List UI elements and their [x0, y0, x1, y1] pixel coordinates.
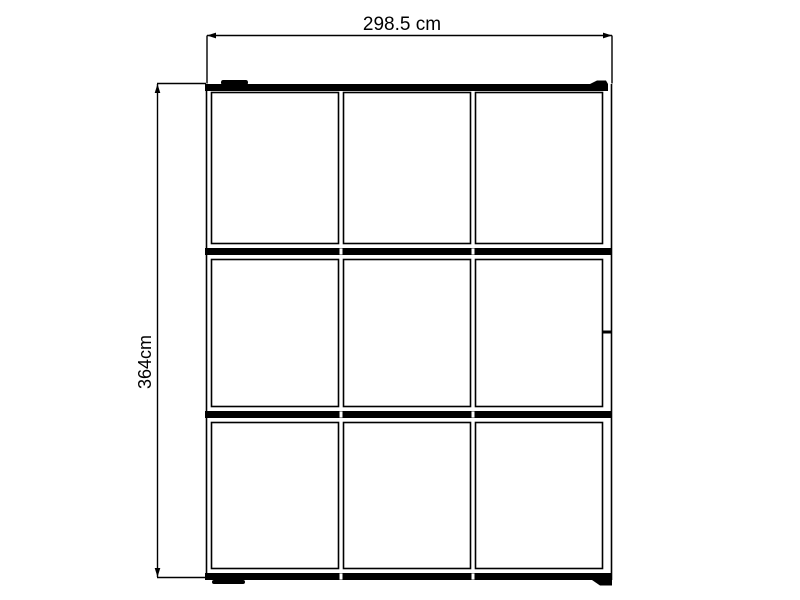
height-arrow-top-icon	[155, 84, 161, 93]
divider-1-notch-right	[472, 248, 475, 254]
bottom-rail-notch-left	[340, 573, 343, 579]
left-foot	[212, 580, 245, 584]
top-roller	[221, 80, 248, 85]
height-arrow-bottom-icon	[155, 568, 161, 577]
panel-r2c3	[476, 260, 603, 407]
bottom-rail	[205, 573, 612, 580]
panel-r2c1	[212, 260, 339, 407]
right-frame-joint	[603, 331, 613, 334]
technical-drawing: 298.5 cm 364cm	[0, 0, 800, 600]
width-arrow-right-icon	[603, 33, 612, 39]
width-arrow-left-icon	[207, 33, 216, 39]
height-dimension: 364cm	[135, 84, 206, 578]
divider-2-notch-left	[340, 411, 343, 417]
width-dimension: 298.5 cm	[207, 14, 612, 84]
panel-r3c3	[476, 423, 603, 569]
right-foot	[592, 580, 612, 586]
panel-r1c2	[344, 93, 471, 244]
bottom-rail-notch-right	[472, 573, 475, 579]
divider-1-notch-left	[340, 248, 343, 254]
row-divider-1	[205, 248, 612, 255]
drawing-canvas: 298.5 cm 364cm	[0, 0, 800, 600]
panel-r2c2	[344, 260, 471, 407]
panel-r3c1	[212, 423, 339, 569]
rail-end-cap	[590, 81, 608, 85]
panel-r1c3	[476, 93, 603, 244]
divider-2-notch-right	[472, 411, 475, 417]
width-dimension-label: 298.5 cm	[363, 14, 441, 35]
height-dimension-label: 364cm	[135, 335, 155, 389]
panel-r1c1	[212, 93, 339, 244]
row-divider-2	[205, 411, 612, 418]
panel-r3c2	[344, 423, 471, 569]
top-rail	[205, 84, 608, 91]
panel-frame	[205, 80, 612, 586]
